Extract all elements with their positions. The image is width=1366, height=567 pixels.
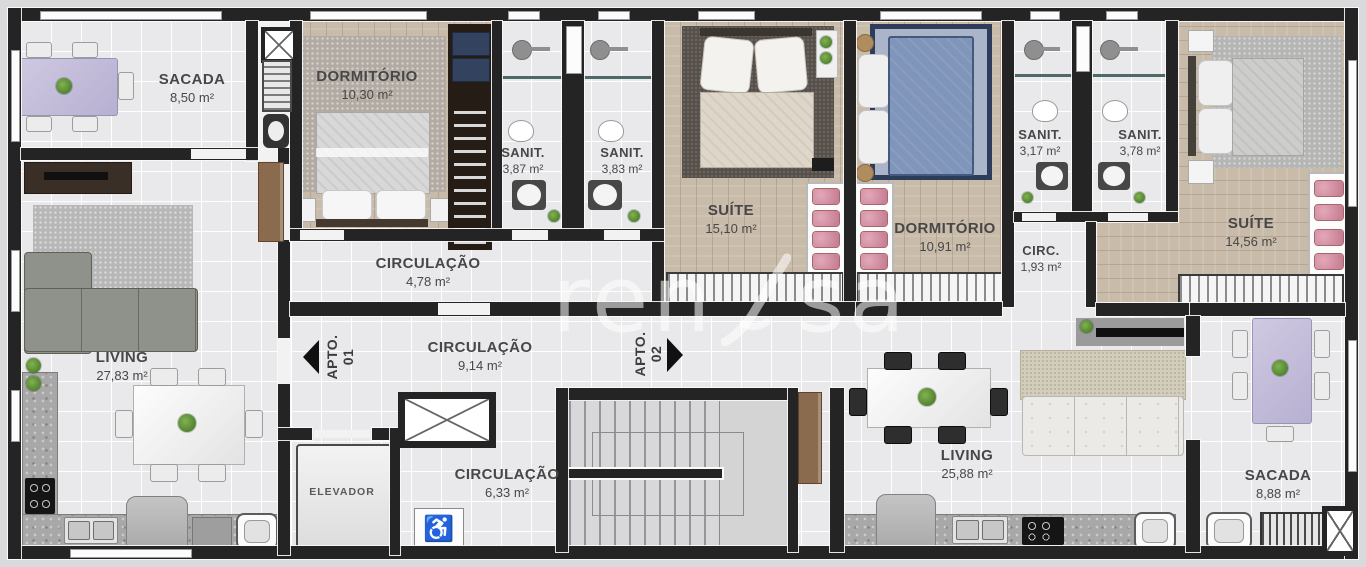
room-label-circ2: CIRC. 1,93 m²	[1021, 243, 1062, 275]
apto2-tag: APTO. 02	[632, 331, 664, 376]
dormitorio2-stool	[856, 164, 874, 182]
sacada1-chair	[118, 72, 134, 100]
room-label-circulacao3: CIRCULAÇÃO 6,33 m²	[455, 465, 560, 501]
window-living1-bottom	[70, 549, 192, 558]
living1-sofa	[24, 288, 198, 352]
wall-sanit2-suite1	[652, 21, 664, 307]
suite2-nightstand	[1188, 160, 1214, 184]
living1-chair	[198, 368, 226, 386]
sanit2-plant	[628, 210, 640, 222]
suite2-pillow	[1198, 60, 1234, 106]
living1-chair	[198, 464, 226, 482]
shaft-sanit-divider2	[1076, 26, 1090, 72]
shaft-x-topleft	[261, 27, 297, 63]
sanit3-glass	[1014, 74, 1072, 77]
sacada2-chair	[1314, 330, 1330, 358]
dormitorio2-pillow	[858, 110, 890, 164]
vent-grid	[262, 60, 292, 112]
suite1-wardrobe	[806, 182, 846, 276]
window-dormitorio2	[880, 11, 982, 20]
living2-chair	[938, 426, 966, 444]
wall-living2-sacada2-b	[1186, 440, 1200, 552]
floor-plan: ELEVADOR ♿	[0, 0, 1366, 567]
sanit3-toilet	[1032, 100, 1058, 122]
suite1-pillow	[754, 36, 809, 94]
room-label-sacada1: SACADA 8,50 m²	[159, 70, 226, 106]
apto1-tag: APTO. 01	[324, 334, 356, 379]
sacada2-chair	[1232, 330, 1248, 358]
dormitorio1-pillow	[322, 190, 372, 220]
sacada1-plant	[56, 78, 72, 94]
window-sanit3	[1030, 11, 1060, 20]
apto2-entry-arrow	[667, 338, 683, 372]
wall-hall-top	[290, 302, 856, 316]
sanit4-plant	[1134, 192, 1145, 203]
accessible-area: ♿	[414, 508, 464, 550]
suite2-duvet	[1232, 58, 1304, 156]
shaft-sanit-divider1	[566, 26, 582, 74]
dormitorio2-pillow	[858, 54, 890, 108]
suite2-pillow	[1198, 108, 1234, 154]
sanit3-shower-arm	[1040, 47, 1060, 51]
living1-sink	[64, 517, 118, 544]
wall-dormitorio2-bottom	[856, 302, 1002, 316]
stairs-handrail	[564, 469, 722, 478]
room-label-circulacao1: CIRCULAÇÃO 4,78 m²	[376, 254, 481, 290]
sacada1-chair	[26, 42, 52, 58]
window-suite1	[698, 11, 755, 20]
suite1-duvet	[700, 92, 814, 168]
sacada2-sink	[1206, 512, 1252, 550]
shaft-x-bottomright	[1322, 506, 1358, 556]
sanit4-toilet	[1102, 100, 1128, 122]
wall-living2-left	[830, 388, 844, 552]
sacada2-plant	[1272, 360, 1288, 376]
wall-suite1-dormitorio2	[844, 21, 856, 307]
sanit3-sink	[1036, 162, 1068, 190]
window-sacada2-right	[1348, 340, 1357, 472]
living2-table-plant	[918, 388, 936, 406]
wall-stairs-top	[556, 388, 790, 400]
suite1-plant	[820, 36, 832, 48]
door-sanit4	[1108, 213, 1148, 221]
living1-chair	[115, 410, 133, 438]
dormitorio1-nightstand	[430, 198, 450, 222]
room-label-living1: LIVING 27,83 m²	[96, 348, 148, 384]
dormitorio1-bed-sheet	[316, 148, 428, 157]
room-label-dormitorio1: DORMITÓRIO 10,30 m²	[316, 67, 418, 103]
elevator-car	[296, 444, 392, 552]
living1-chair	[150, 368, 178, 386]
door-circulacao1	[438, 303, 490, 315]
window-dormitorio1	[310, 11, 427, 20]
room-label-sanit2: SANIT. 3,83 m²	[600, 145, 644, 177]
sanit2-glass	[584, 76, 652, 79]
wall-living2-sacada2-a	[1186, 316, 1200, 356]
suite1-tray	[812, 158, 834, 171]
living1-chair	[245, 410, 263, 438]
sacada2-grill	[1260, 512, 1324, 550]
living2-sofa	[1022, 396, 1184, 456]
outer-wall-bottom	[8, 546, 1358, 559]
dormitorio2-duvet	[888, 36, 974, 176]
living2-fridge	[876, 494, 936, 547]
living1-table-plant	[178, 414, 196, 432]
living2-laundry-sink	[1134, 512, 1176, 550]
dormitorio1-pillow	[376, 190, 426, 220]
room-label-hall: CIRCULAÇÃO 9,14 m²	[428, 338, 533, 374]
sanit4-shower-arm	[1116, 47, 1138, 51]
room-label-sacada2: SACADA 8,88 m²	[1245, 466, 1312, 502]
living2-sofa-rug	[1020, 350, 1186, 400]
room-label-sanit4: SANIT. 3,78 m²	[1118, 127, 1162, 159]
window-sanit2	[598, 11, 630, 20]
door-sanit2	[604, 230, 640, 240]
living2-chair	[884, 352, 912, 370]
sacada2-chair	[1266, 426, 1294, 442]
room-label-suite1: SUÍTE 15,10 m²	[705, 201, 756, 237]
suite1-headboard	[700, 28, 812, 36]
suite2-nightstand	[1188, 30, 1214, 52]
dormitorio2-stool	[856, 34, 874, 52]
sanit2-shower-arm	[606, 47, 628, 51]
door-dormitorio1	[300, 230, 344, 240]
suite2-entry-floor	[1096, 222, 1178, 307]
wall-sacada2-top	[1190, 303, 1345, 316]
wall-elevator-top-a	[278, 428, 312, 440]
wall-suite2-bottom	[1096, 303, 1190, 316]
sacada1-chair	[26, 116, 52, 132]
living2-chair	[990, 388, 1008, 416]
wall-sanit4-suite2	[1166, 21, 1178, 221]
suite1-pillow	[699, 36, 754, 95]
room-label-sanit3: SANIT. 3,17 m²	[1018, 127, 1062, 159]
sanit2-sink	[588, 180, 622, 210]
room-label-sanit1: SANIT. 3,87 m²	[501, 145, 545, 177]
living2-cooktop	[1022, 517, 1064, 545]
sacada1-chair	[72, 116, 98, 132]
door-leaf-apto1	[258, 162, 284, 242]
shaft-x-elevator	[398, 392, 496, 448]
elevator-label: ELEVADOR	[309, 486, 375, 498]
living2-chair	[884, 426, 912, 444]
wall-sacada1-right	[246, 21, 258, 161]
door-sanit3	[1022, 213, 1056, 221]
door-leaf-apto2	[798, 392, 822, 484]
sanit1-shower-arm	[528, 47, 550, 51]
wheelchair-icon: ♿	[423, 515, 454, 544]
living2-tv	[1096, 328, 1184, 337]
doorway-apto1-entry	[278, 338, 290, 384]
window-sanit1	[508, 11, 540, 20]
apto1-entry-arrow	[303, 340, 319, 374]
closet-hangers	[454, 110, 486, 244]
door-sacada1-living1	[191, 149, 246, 159]
living2-tv-plant	[1080, 320, 1093, 333]
living1-counter-plant	[26, 358, 41, 373]
suite2-headboard	[1188, 56, 1196, 156]
window-living1-left2	[11, 390, 20, 442]
sanit2-toilet	[598, 120, 624, 142]
sanit1-toilet	[508, 120, 534, 142]
living1-fridge	[126, 496, 188, 547]
living1-chair	[150, 464, 178, 482]
dormitorio1-headboard	[316, 219, 428, 227]
wall-dormitorio1-sanit1	[492, 21, 502, 241]
living1-laundry-sink	[236, 513, 278, 550]
window-sanit4	[1106, 11, 1138, 20]
sanit4-sink	[1098, 162, 1130, 190]
wall-dormitorio2-right	[1002, 21, 1014, 307]
living1-cooktop	[25, 478, 55, 514]
sanit1-plant	[548, 210, 560, 222]
room-label-dormitorio2: DORMITÓRIO 10,91 m²	[894, 219, 996, 255]
living2-sink	[952, 516, 1008, 544]
water-heater-top	[268, 121, 284, 141]
sanit1-glass	[502, 76, 562, 79]
dormitorio2-wardrobe	[854, 182, 894, 276]
living2-chair	[849, 388, 867, 416]
living1-counter-plant	[26, 376, 41, 391]
sacada2-chair	[1232, 372, 1248, 400]
suite1-plant	[820, 52, 832, 64]
living1-tv	[44, 172, 108, 180]
sanit3-plant	[1022, 192, 1033, 203]
room-label-suite2: SUÍTE 14,56 m²	[1225, 214, 1276, 250]
living2-chair	[938, 352, 966, 370]
window-living1-left1	[11, 250, 20, 312]
closet-box	[452, 58, 490, 82]
sanit1-sink	[512, 180, 546, 210]
window-sacada1-left	[11, 50, 20, 142]
wall-circ2-right	[1086, 222, 1096, 307]
sacada1-chair	[72, 42, 98, 58]
closet-box	[452, 32, 490, 56]
elevator-door	[314, 430, 370, 438]
window-sacada1	[40, 11, 222, 20]
window-suite2-right	[1348, 60, 1357, 207]
sanit4-glass	[1092, 74, 1166, 77]
sacada2-chair	[1314, 372, 1330, 400]
living1-counter-appliance	[192, 517, 232, 546]
room-label-living2: LIVING 25,88 m²	[941, 446, 993, 482]
wall-stairs-right	[788, 388, 798, 552]
door-sanit1	[512, 230, 548, 240]
suite2-wardrobe	[1308, 172, 1350, 278]
